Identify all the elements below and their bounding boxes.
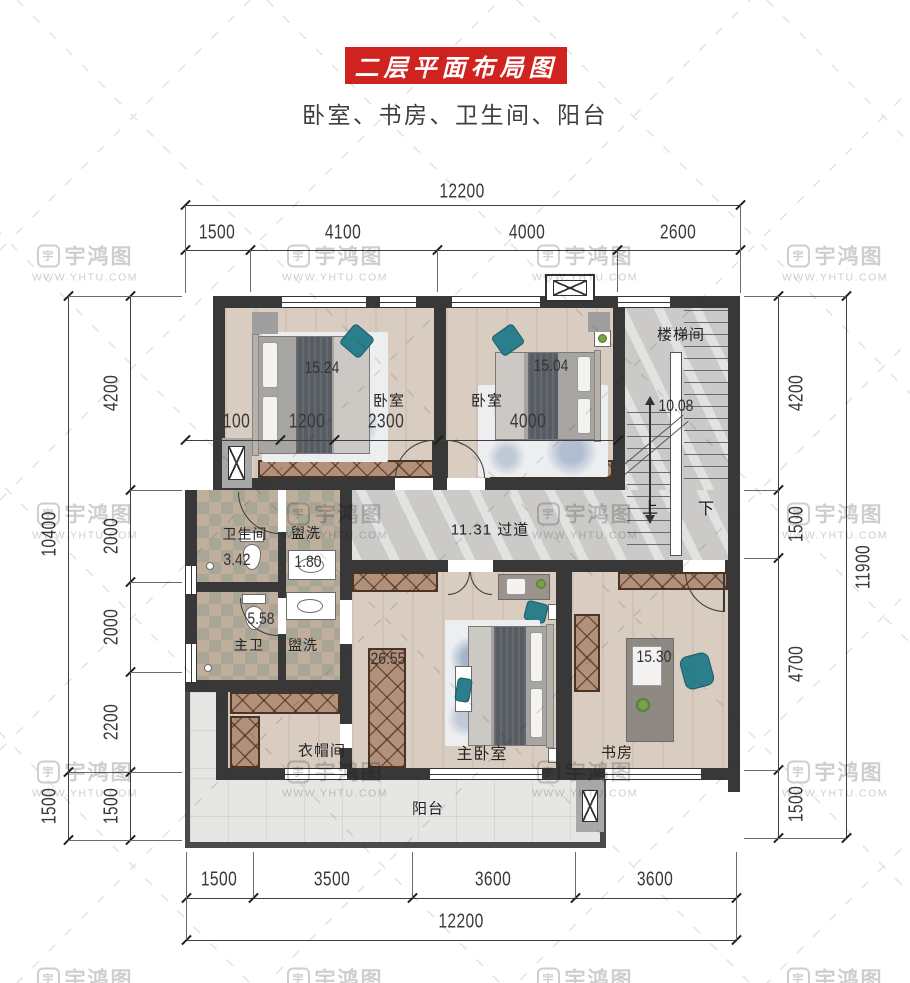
pillow <box>577 356 591 392</box>
dim-left-seg: 2000 <box>101 513 124 560</box>
area-bathroom: 3.42 <box>220 550 253 570</box>
window <box>285 768 347 780</box>
dim-bottom-seg: 3500 <box>309 869 356 892</box>
dim-left-outer: 1500 <box>39 783 62 830</box>
window <box>605 768 701 780</box>
wardrobe-masterbed-top <box>352 572 438 592</box>
dim-left-seg: 1500 <box>101 783 124 830</box>
brand-logo-icon: 宇 <box>286 967 309 983</box>
label-bathroom: 卫生间 <box>223 524 268 544</box>
wardrobe-cloakroom-top <box>230 692 340 714</box>
wall-segment <box>434 308 446 478</box>
door-leaf <box>432 440 434 478</box>
wall-segment <box>485 478 613 490</box>
column <box>252 312 278 334</box>
headboard <box>594 350 601 442</box>
watermark: 宇宇鸿图WWW.YHTU.COM <box>282 964 388 983</box>
wall-segment <box>278 532 286 582</box>
brand-logo-icon: 宇 <box>36 244 59 267</box>
ext-line <box>130 772 182 773</box>
area-study: 15.30 <box>633 647 676 667</box>
label-corridor: 11.31 过道 <box>451 519 530 540</box>
dim-line <box>185 250 740 251</box>
dim-bottom-seg: 3600 <box>632 869 679 892</box>
area-bedroom1: 15.24 <box>301 358 344 378</box>
flue-x-icon <box>582 790 598 822</box>
headboard <box>252 334 259 456</box>
label-bedroom1: 卧室 <box>373 390 405 411</box>
ext-line <box>437 250 438 292</box>
dim-bottom-seg: 1500 <box>196 869 243 892</box>
dim-left-outer: 10400 <box>39 505 62 563</box>
label-stairwell: 楼梯间 <box>657 324 705 345</box>
window <box>430 768 542 780</box>
area-stairwell: 10.08 <box>655 396 698 416</box>
ext-line <box>68 296 130 297</box>
ext-line <box>130 490 182 491</box>
stair-up-label: 上 <box>642 494 658 518</box>
window <box>185 644 197 682</box>
wall-segment <box>433 478 447 490</box>
dim-top-seg: 4100 <box>320 222 367 245</box>
dim-top-seg: 4000 <box>504 222 551 245</box>
dim-interior: 1200 <box>284 411 331 434</box>
watermark: 宇宇鸿图WWW.YHTU.COM <box>32 964 138 983</box>
balcony-wall <box>185 842 605 848</box>
ext-line <box>186 852 187 940</box>
dim-interior: 2300 <box>363 411 410 434</box>
area-bedroom2: 15.04 <box>530 356 573 376</box>
door-leaf <box>446 440 448 478</box>
window <box>452 296 540 308</box>
bed-throw <box>296 337 332 453</box>
dim-line <box>185 205 740 206</box>
ext-line <box>744 770 780 771</box>
dim-left-seg: 4200 <box>101 370 124 417</box>
ext-line <box>130 582 182 583</box>
area-masterbed: 26.55 <box>367 649 410 669</box>
headboard <box>546 624 554 748</box>
ext-line <box>68 772 130 773</box>
dim-right-seg: 1500 <box>786 781 809 828</box>
dim-left-seg: 2200 <box>101 699 124 746</box>
dim-interior: 2100 <box>209 411 256 434</box>
brand-logo-icon: 宇 <box>786 760 809 783</box>
stair-rail <box>670 352 682 556</box>
dim-interior: 4000 <box>505 411 552 434</box>
label-cloakroom: 衣帽间 <box>298 740 346 761</box>
plant-icon <box>536 579 546 589</box>
window <box>618 296 670 308</box>
dim-top-total: 12200 <box>433 181 491 204</box>
wardrobe-study-left <box>574 614 600 692</box>
bed-foot <box>469 627 491 745</box>
label-masterbath: 主卫 <box>234 635 264 655</box>
ext-line <box>617 250 618 292</box>
ext-line <box>744 838 780 839</box>
balcony-wall <box>185 692 190 848</box>
stair-down-label: 下 <box>698 495 714 519</box>
wall-segment <box>725 560 740 572</box>
watermark: 宇宇鸿图WWW.YHTU.COM <box>782 241 888 284</box>
pillow <box>530 688 543 738</box>
ext-line <box>253 852 254 898</box>
watermark: 宇宇鸿图WWW.YHTU.COM <box>32 241 138 284</box>
pillow <box>262 396 278 442</box>
wall-segment <box>613 308 625 490</box>
wall-segment <box>340 644 352 724</box>
page-title: 二层平面布局图 <box>355 48 558 83</box>
flue-x-icon <box>553 280 587 296</box>
dim-right-seg: 1500 <box>786 501 809 548</box>
wall-segment <box>216 692 228 768</box>
ext-line <box>130 296 182 297</box>
ext-line <box>250 250 251 292</box>
dim-right-seg: 4700 <box>786 641 809 688</box>
ext-line <box>744 558 780 559</box>
door-leaf <box>723 572 725 612</box>
plant-icon <box>636 698 650 712</box>
brand-logo-icon: 宇 <box>36 967 59 983</box>
ext-line <box>185 205 186 293</box>
dim-line <box>186 898 736 899</box>
dim-top-seg: 1500 <box>194 222 241 245</box>
dim-line-interior <box>185 440 618 441</box>
ext-line <box>736 852 737 940</box>
ext-line <box>412 852 413 898</box>
ext-line <box>740 205 741 293</box>
washbasin-icon <box>297 599 323 613</box>
bed-throw <box>494 627 526 745</box>
dim-line <box>68 296 69 840</box>
dim-right-seg: 4200 <box>786 370 809 417</box>
wall-segment <box>493 560 683 572</box>
pillow <box>577 398 591 434</box>
dim-bottom-total: 12200 <box>432 911 490 934</box>
stair-arrow-head-up <box>645 396 655 405</box>
wall-segment <box>340 490 352 600</box>
dim-line <box>778 296 779 838</box>
watermark: 宇宇鸿图WWW.YHTU.COM <box>532 964 638 983</box>
watermark: 宇宇鸿图WWW.YHTU.COM <box>282 241 388 284</box>
wall-segment <box>352 560 448 572</box>
ext-line <box>744 296 780 297</box>
window <box>185 566 197 594</box>
area-wash1: 1.80 <box>291 552 324 572</box>
ext-line <box>780 296 846 297</box>
wall-segment <box>185 680 352 692</box>
label-wash1: 盥洗 <box>291 523 321 543</box>
floor-drain <box>204 664 212 672</box>
dim-right-total: 11900 <box>853 539 876 596</box>
label-balcony: 阳台 <box>412 798 444 819</box>
dim-bottom-seg: 3600 <box>470 869 517 892</box>
label-masterbed: 主卧室 <box>456 740 507 764</box>
ext-line <box>68 840 130 841</box>
dim-line <box>186 940 736 941</box>
wall-segment <box>556 572 572 768</box>
pillow <box>262 342 278 388</box>
watermark: 宇宇鸿图WWW.YHTU.COM <box>782 964 888 983</box>
brand-logo-icon: 宇 <box>786 244 809 267</box>
floor-plan-page: 二层平面布局图 卧室、书房、卫生间、阳台 <box>0 0 910 983</box>
wardrobe-cloakroom-left <box>230 716 260 768</box>
column <box>588 312 610 332</box>
window <box>282 296 366 308</box>
floor-drain <box>206 562 214 570</box>
dim-line <box>846 296 847 838</box>
brand-logo-icon: 宇 <box>536 967 559 983</box>
ext-line <box>130 672 182 673</box>
wall-segment <box>728 308 740 792</box>
dim-line <box>130 296 131 840</box>
label-wash2: 盥洗 <box>288 635 318 655</box>
label-bedroom2: 卧室 <box>471 390 503 411</box>
page-subtitle: 卧室、书房、卫生间、阳台 <box>0 96 910 130</box>
brand-logo-icon: 宇 <box>36 760 59 783</box>
brand-logo-icon: 宇 <box>536 244 559 267</box>
ext-line <box>130 840 182 841</box>
plant-icon <box>598 334 607 343</box>
window <box>380 296 416 308</box>
wall-segment <box>278 634 286 680</box>
title-banner: 二层平面布局图 <box>345 47 567 84</box>
brand-logo-icon: 宇 <box>786 967 809 983</box>
ext-line <box>744 490 780 491</box>
pillow <box>530 632 543 682</box>
label-study: 书房 <box>601 742 633 763</box>
room-balcony-floor <box>190 778 600 842</box>
ext-line <box>780 838 846 839</box>
brand-logo-icon: 宇 <box>286 244 309 267</box>
flue-x-icon <box>228 446 245 480</box>
ext-line <box>575 852 576 898</box>
dim-top-seg: 2600 <box>655 222 702 245</box>
wall-segment <box>185 582 286 592</box>
papers <box>506 578 526 595</box>
dim-left-seg: 2000 <box>101 604 124 651</box>
wall-segment <box>278 582 286 598</box>
area-masterbath: 5.58 <box>244 609 277 629</box>
